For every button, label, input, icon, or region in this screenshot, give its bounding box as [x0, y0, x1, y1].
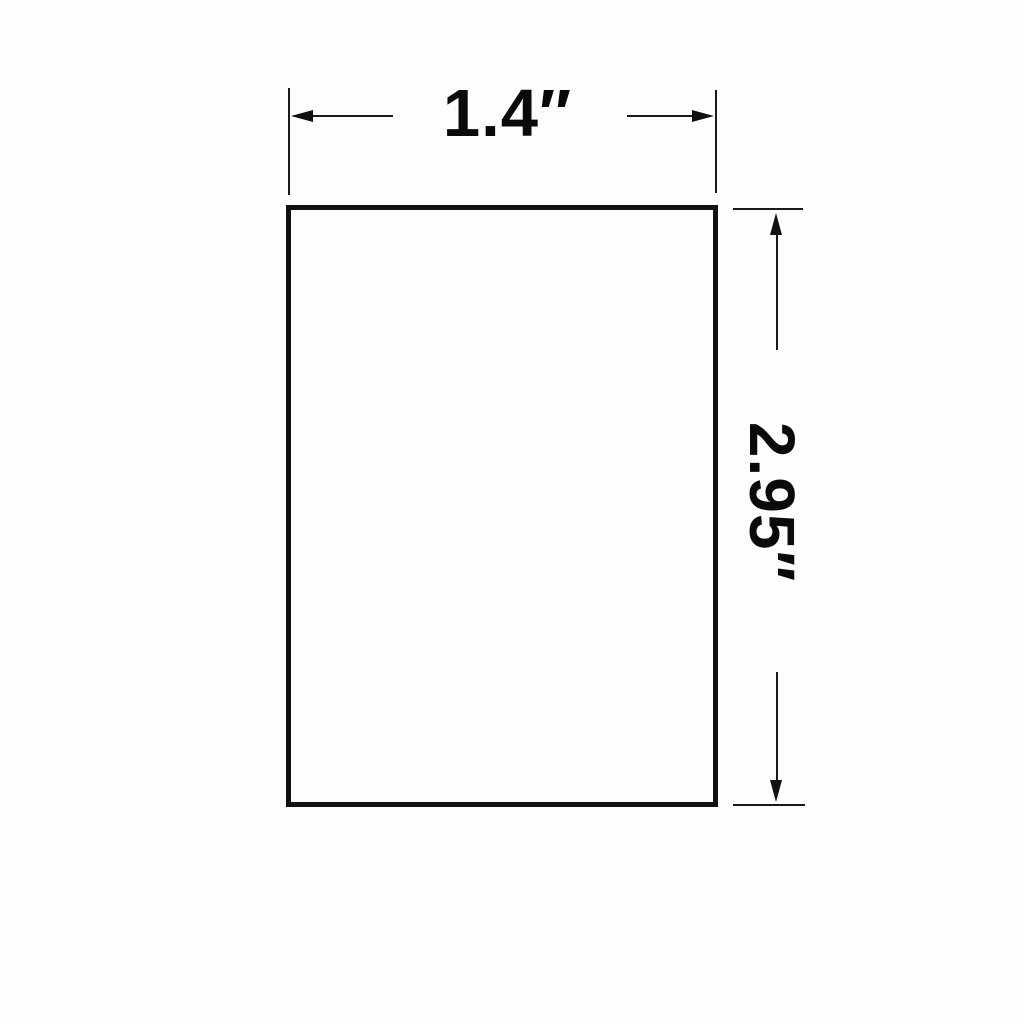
- height-arrow-shaft-top: [776, 234, 778, 350]
- dimension-drawing: 1.4″ 2.95″: [0, 0, 1024, 1024]
- arrow-down-icon: [770, 780, 782, 802]
- width-arrow-shaft-right: [627, 115, 694, 117]
- arrow-left-icon: [291, 110, 313, 122]
- width-dimension-label: 1.4″: [415, 80, 600, 147]
- arrow-up-icon: [770, 213, 782, 235]
- width-arrow-shaft-left: [308, 115, 393, 117]
- rectangle-outline: [286, 205, 718, 807]
- height-arrow-shaft-bottom: [776, 672, 778, 782]
- height-extension-line-bottom: [733, 804, 805, 806]
- width-extension-line-right: [715, 90, 717, 193]
- width-extension-line-left: [288, 88, 290, 195]
- height-extension-line-top: [733, 208, 803, 210]
- height-dimension-label: 2.95″: [732, 382, 812, 622]
- arrow-right-icon: [692, 110, 714, 122]
